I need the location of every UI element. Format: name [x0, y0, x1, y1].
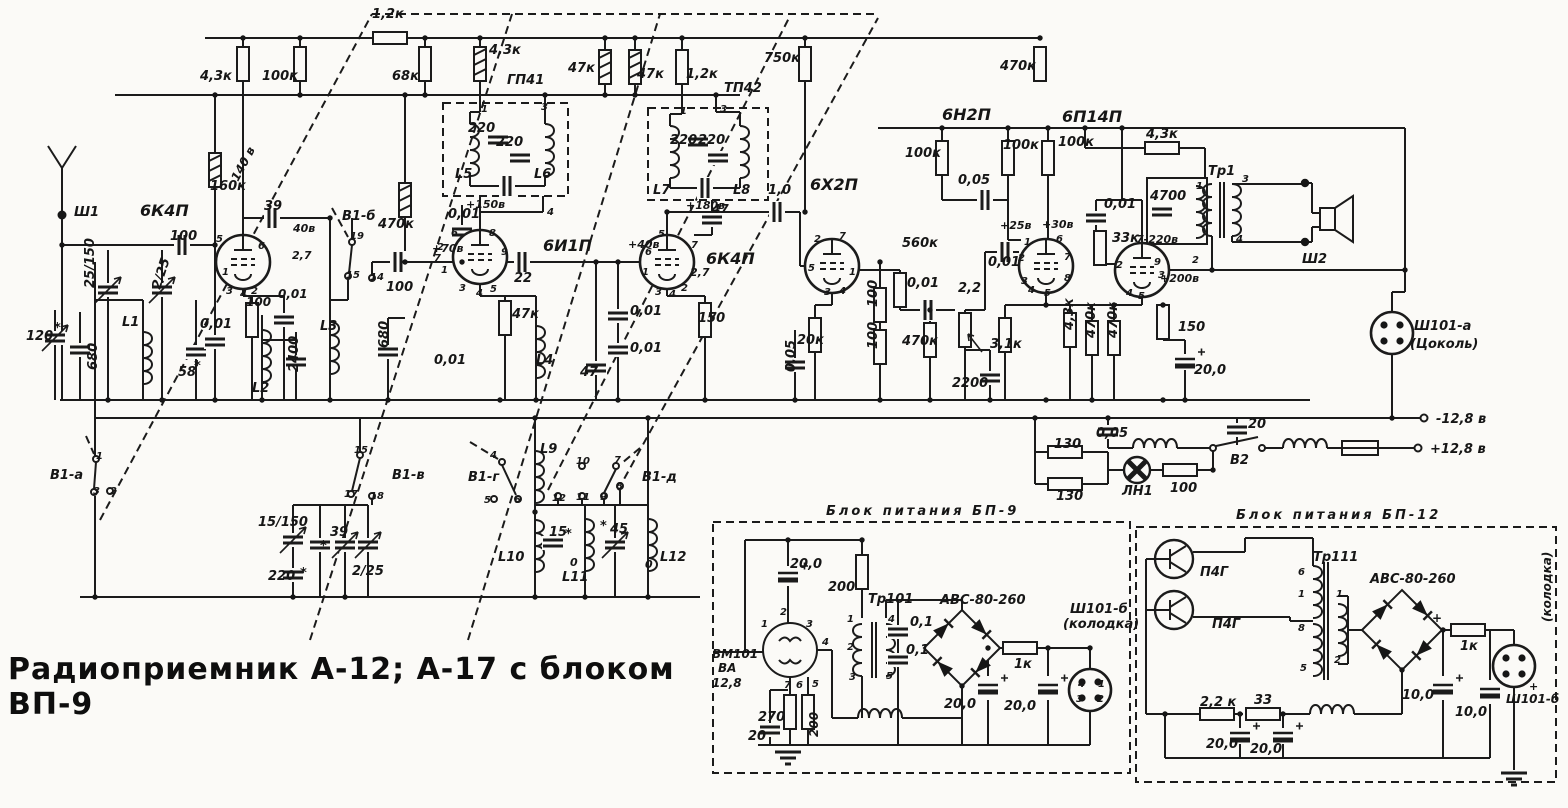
- schematic-label: 2: [814, 234, 821, 245]
- schematic-label: *: [600, 519, 607, 534]
- schematic-label: 6: [451, 228, 458, 239]
- schematic-label: 0,01: [988, 255, 1020, 270]
- schematic-label: 6К4П: [706, 249, 755, 268]
- schematic-label: 5: [886, 671, 893, 682]
- schematic-label: 0,01: [630, 304, 662, 319]
- schematic-label: 4: [239, 289, 247, 300]
- schematic-label: L9: [540, 442, 557, 457]
- schematic-label: 3: [1021, 276, 1028, 287]
- resistor: [799, 47, 811, 81]
- schematic-label: ТП42: [724, 81, 762, 96]
- schematic-label: 4: [1125, 288, 1133, 299]
- schematic-label: 47к: [567, 61, 596, 76]
- schematic-label: 220: [496, 135, 523, 150]
- schematic-label: 4: [1027, 285, 1035, 296]
- schematic-label: 2/25: [352, 564, 384, 579]
- schematic-label: *: [300, 566, 307, 581]
- schematic-label: 4: [887, 614, 895, 625]
- schematic-label: 200: [828, 580, 855, 595]
- schematic-label: 4700: [1149, 189, 1186, 204]
- schematic-label: (Цоколь): [1410, 337, 1478, 352]
- schematic-label: 2: [1097, 694, 1104, 705]
- schematic-label: ВМ101: [712, 647, 758, 661]
- resistor: [1094, 231, 1106, 265]
- speaker-terminal: [1301, 238, 1309, 246]
- schematic-label: В1-в: [392, 468, 425, 483]
- schematic-label: 470к: [999, 59, 1037, 74]
- schematic-label: L4: [536, 353, 553, 368]
- coil-L4: [536, 326, 545, 378]
- schematic-label: 6: [1298, 567, 1305, 578]
- schematic-label: 4: [1077, 679, 1085, 690]
- schematic-label: 4,3к: [1145, 127, 1179, 142]
- schematic-label: 20к: [797, 333, 825, 348]
- schematic-page: Радиоприемник А-12; А-17 с блоком ВП-9: [0, 0, 1568, 808]
- electrolytic-capacitor: [1037, 675, 1068, 697]
- resistor: [1003, 642, 1037, 654]
- schematic-label: +25в: [1000, 219, 1032, 232]
- schematic-label: +40в: [628, 238, 660, 251]
- schematic-label: 6И1П: [543, 236, 593, 255]
- schematic-label: 6П14П: [1062, 107, 1123, 126]
- schematic-label: 3: [93, 486, 100, 497]
- schematic-label: В1-д: [642, 470, 677, 485]
- schematic-label: 11: [576, 492, 590, 503]
- schematic-label: 100: [170, 229, 197, 244]
- schematic-label: 0: [645, 558, 653, 571]
- schematic-label: 4: [838, 286, 846, 297]
- schematic-label: 470к: [1106, 301, 1121, 339]
- schematic-label: 1к: [1460, 639, 1479, 654]
- schematic-label: 7: [434, 253, 441, 264]
- component-layer: [42, 32, 1535, 785]
- schematic-label: ЛН1: [1121, 484, 1153, 499]
- schematic-label: 6К4П: [140, 201, 189, 220]
- schematic-label: 3: [541, 102, 548, 113]
- schematic-label: L7: [653, 183, 671, 198]
- transistor-P4G: [1155, 540, 1193, 578]
- schematic-label: +30в: [1042, 218, 1074, 231]
- schematic-label: 1: [849, 267, 856, 278]
- schematic-label: 6Н2П: [942, 105, 992, 124]
- schematic-label: 1,0: [768, 183, 791, 198]
- schematic-label: *: [54, 321, 61, 336]
- schematic-label: 7: [839, 231, 846, 242]
- schematic-label: 4,3к: [1062, 297, 1077, 331]
- schematic-label: П4Г: [1212, 617, 1241, 632]
- schematic-label: (колодка): [1540, 552, 1554, 622]
- schematic-label: 20: [748, 729, 766, 744]
- resistor: [237, 47, 249, 81]
- resistor: [856, 555, 868, 589]
- schematic-label: 47к: [636, 67, 665, 82]
- resistor: [419, 47, 431, 81]
- tube-6I1P: [453, 230, 507, 284]
- schematic-label: 100к: [905, 146, 942, 161]
- schematic-label: 5: [1300, 663, 1307, 674]
- schematic-label: 2,2 к: [1200, 695, 1238, 710]
- schematic-label: 7-220в: [1136, 233, 1178, 246]
- schematic-label: 20: [1248, 417, 1266, 432]
- capacitor: [273, 313, 295, 327]
- schematic-label: L1: [122, 315, 139, 330]
- electrolytic-capacitor: [1272, 723, 1303, 745]
- schematic-label: L3: [320, 319, 337, 334]
- electrolytic-capacitor: [977, 675, 1008, 697]
- transformer-core: [872, 622, 876, 678]
- schematic-label: 5: [812, 679, 819, 690]
- coil-L9: [535, 451, 544, 503]
- schematic-label: 39: [330, 525, 348, 540]
- schematic-label: 270: [758, 710, 785, 725]
- schematic-label: 20,0: [1194, 363, 1226, 378]
- schematic-label: 3: [655, 287, 662, 298]
- resistor: [474, 47, 486, 81]
- schematic-label: 15/150: [258, 515, 308, 530]
- capacitor: [1226, 423, 1248, 437]
- resistor: [1145, 142, 1179, 154]
- schematic-label: 0,01: [630, 341, 662, 356]
- schematic-label: (колодка): [1063, 617, 1139, 632]
- schematic-label: 6: [258, 241, 265, 252]
- transformer-winding: [1232, 184, 1241, 236]
- schematic-label: П4Г: [1200, 565, 1229, 580]
- coil-L8: [740, 126, 749, 178]
- schematic-label: 7: [784, 680, 791, 691]
- schematic-label: 470к: [1084, 301, 1099, 339]
- schematic-label: 6: [514, 495, 521, 506]
- schematic-label: Ш2: [1302, 252, 1327, 267]
- schematic-label: 220: [268, 569, 295, 584]
- capacitor: [514, 251, 530, 273]
- rectifier-bridge: [1362, 590, 1442, 670]
- capacitor: [1151, 205, 1173, 219]
- schematic-label: 10,0: [1455, 705, 1487, 720]
- schematic-label: L10: [498, 550, 524, 565]
- speaker-terminal: [1301, 179, 1309, 187]
- transformer-core: [1324, 562, 1328, 680]
- resistor: [373, 32, 407, 44]
- schematic-label: Ш1: [74, 205, 99, 220]
- schematic-label: 1: [481, 104, 488, 115]
- schematic-label: 200: [807, 712, 821, 737]
- schematic-label: 1: [96, 451, 103, 462]
- schematic-label: 680: [86, 343, 101, 370]
- schematic-label: 22: [514, 271, 532, 286]
- resistor: [784, 695, 796, 729]
- schematic-label: 3: [824, 287, 831, 298]
- schematic-label: 100к: [262, 69, 299, 84]
- schematic-label: 5: [216, 234, 223, 245]
- dashed-layer: [86, 14, 1556, 782]
- schematic-label: 1: [642, 267, 649, 278]
- schematic-label: 220: [698, 133, 725, 148]
- schematic-label: Ш101-а: [1414, 319, 1471, 334]
- schematic-label: 2: [1334, 655, 1341, 666]
- schematic-label: 4: [489, 450, 497, 461]
- transistor-P4G: [1155, 591, 1193, 629]
- schematic-label: 2: [847, 642, 854, 653]
- schematic-label: 3: [459, 283, 466, 294]
- schematic-label: *: [320, 539, 327, 554]
- schematic-label: Ш101-б: [1070, 602, 1128, 617]
- schematic-label: 1: [222, 267, 229, 278]
- schematic-label: *: [565, 527, 572, 542]
- schematic-label: ВА: [718, 661, 736, 675]
- schematic-label: 750к: [764, 51, 801, 66]
- schematic-label: 6Х2П: [810, 175, 859, 194]
- schematic-label: 3: [720, 104, 727, 115]
- schematic-label: 4: [821, 637, 829, 648]
- schematic-label: 19: [350, 231, 364, 242]
- schematic-label: -12,8 в: [1436, 412, 1486, 427]
- schematic-label: 12,8: [712, 676, 742, 690]
- schematic-label: Тр1: [1208, 164, 1235, 179]
- schematic-label: 3: [849, 672, 856, 683]
- schematic-label: 14: [370, 272, 384, 283]
- resistor: [399, 183, 411, 217]
- schematic-label: 8: [1064, 273, 1071, 284]
- schematic-label: 470к: [901, 334, 939, 349]
- schematic-label: 47: [711, 202, 729, 216]
- schematic-label: 68к: [392, 69, 420, 84]
- schematic-label: 7: [691, 240, 698, 251]
- schematic-label: +200в: [1160, 272, 1199, 285]
- schematic-label: 3: [1076, 694, 1083, 705]
- schematic-label: L8: [733, 183, 750, 198]
- schematic-label: 8: [616, 481, 623, 492]
- resistor: [894, 273, 906, 307]
- schematic-label: L11: [562, 570, 588, 585]
- schematic-label: 2,7: [292, 249, 312, 262]
- choke: [1283, 439, 1327, 448]
- schematic-label: 100: [386, 280, 413, 295]
- schematic-label: Блок питания БП-12: [1236, 508, 1441, 523]
- speaker-body: [1320, 208, 1335, 230]
- coil-L2: [262, 330, 271, 382]
- schematic-label: 3,1к: [990, 337, 1023, 352]
- schematic-label: 20,0: [1206, 737, 1238, 752]
- power-block-bp12: [1136, 527, 1556, 782]
- capacitor: [977, 189, 993, 211]
- schematic-label: 15: [346, 270, 360, 281]
- capacitor: [499, 175, 515, 197]
- resistor: [1246, 708, 1280, 720]
- schematic-label: 120: [26, 329, 53, 344]
- schematic-label: 4: [1235, 234, 1243, 245]
- junction-dots: [59, 35, 1445, 716]
- schematic-label: 1: [761, 619, 768, 630]
- schematic-label: 1: [441, 265, 448, 276]
- capacitor: [204, 335, 226, 349]
- schematic-label: 220: [468, 121, 495, 136]
- schematic-label: В2: [1230, 453, 1249, 468]
- schematic-label: 4,3к: [199, 69, 233, 84]
- capacitor: [707, 151, 729, 165]
- choke: [858, 709, 902, 718]
- capacitor: [697, 177, 713, 199]
- choke: [1310, 705, 1354, 714]
- schematic-label: 33: [1254, 693, 1272, 708]
- resistor: [1042, 141, 1054, 175]
- schematic-label: 100: [246, 295, 271, 309]
- schematic-label: 5: [658, 229, 665, 240]
- schematic-label: 4: [475, 288, 483, 299]
- schematic-label: +12,8 в: [1430, 442, 1486, 457]
- schematic-label: +: [1529, 680, 1538, 693]
- capacitor: [887, 625, 909, 639]
- schematic-label: 9: [600, 492, 607, 503]
- schematic-label: 4: [668, 289, 676, 300]
- schematic-label: 3: [226, 286, 233, 297]
- schematic-label: 0,05: [1096, 426, 1128, 441]
- schematic-label: 2: [1116, 260, 1123, 271]
- electrolytic-capacitor: [1432, 675, 1463, 697]
- schematic-label: 6: [645, 247, 652, 258]
- schematic-label: 5: [484, 495, 491, 506]
- schematic-label: 10: [576, 456, 590, 467]
- transformer-core: [1220, 182, 1224, 238]
- schematic-label: 1: [1336, 589, 1343, 600]
- schematic-label: В1-а: [50, 468, 83, 483]
- schematic-label: 2200: [952, 376, 988, 391]
- schematic-label: 3: [806, 619, 813, 630]
- schematic-label: Ш101-б: [1506, 692, 1559, 706]
- schematic-label: 1: [680, 106, 687, 117]
- coil-L1: [143, 332, 152, 384]
- schematic-label: 2400: [287, 336, 302, 372]
- schematic-label: 7: [614, 455, 621, 466]
- ground-symbol: [775, 752, 801, 764]
- schematic-label: 130: [1054, 437, 1081, 452]
- schematic-label: 2: [110, 486, 117, 497]
- schematic-label: 5: [1138, 291, 1145, 302]
- schematic-label: 6: [1056, 234, 1063, 245]
- schematic-label: L12: [660, 550, 686, 565]
- schematic-label: Тр101: [868, 592, 913, 607]
- capacitor: [607, 343, 629, 357]
- capacitor: [769, 201, 785, 223]
- schematic-label: АВС-80-260: [1369, 572, 1456, 587]
- schematic-label: 15: [354, 445, 368, 456]
- schematic-label: ГП41: [507, 73, 544, 88]
- schematic-label: 12: [552, 493, 566, 504]
- schematic-label: 2: [437, 242, 444, 253]
- volume-potentiometer: [959, 313, 971, 347]
- schematic-label: 0,01: [278, 287, 308, 301]
- schematic-label: 10,0: [1402, 688, 1434, 703]
- schematic-label: 130: [1056, 489, 1083, 504]
- schematic-label: 4: [546, 207, 554, 218]
- schematic-label: 47: [579, 365, 599, 380]
- resistor: [1163, 464, 1197, 476]
- schematic-label: 220: [670, 133, 697, 148]
- choke: [1133, 439, 1177, 448]
- schematic-label: 20,0: [944, 697, 976, 712]
- schematic-label: В1-б: [342, 209, 375, 224]
- schematic-label: 2: [1018, 253, 1025, 264]
- antenna-terminal: [58, 211, 67, 220]
- schematic-label: 9: [1154, 257, 1161, 268]
- dial-lamp-LN1: [1124, 457, 1150, 483]
- schematic-label: 1к: [1014, 657, 1033, 672]
- schematic-label: 3: [1158, 270, 1165, 281]
- schematic-label: 1: [1098, 679, 1105, 690]
- schematic-label: 5: [490, 284, 497, 295]
- schematic-label: L5: [455, 167, 472, 182]
- schematic-label: 150: [698, 311, 725, 326]
- schematic-label: 0,1: [906, 643, 929, 658]
- schematic-label: 1: [1298, 589, 1305, 600]
- schematic-label: *: [194, 359, 201, 374]
- schematic-label: 3: [1242, 174, 1249, 185]
- schematic-label: 5: [1044, 288, 1051, 299]
- ground-symbol: [1501, 773, 1527, 785]
- schematic-label: 47к: [511, 307, 540, 322]
- schematic-label: 18: [370, 491, 384, 502]
- schematic-label: 1: [1196, 181, 1203, 192]
- schematic-label: 2: [681, 283, 688, 294]
- schematic-label: 17: [344, 489, 358, 500]
- capacitor: [607, 309, 629, 323]
- schematic-label: 100: [1170, 481, 1197, 496]
- schematic-label: +150в: [466, 198, 505, 211]
- schematic-label: 20,0: [1004, 699, 1036, 714]
- capacitor: [509, 151, 531, 165]
- schematic-label: 9: [501, 247, 508, 258]
- connector-sh101a: [1371, 312, 1413, 354]
- schematic-label: 1,2к: [372, 7, 405, 22]
- schematic-label: 100к: [1003, 138, 1040, 153]
- schematic-label: 40в: [292, 222, 315, 235]
- schematic-label: 8: [489, 228, 496, 239]
- schematic-label: В1-г: [468, 470, 500, 485]
- fuse: [1342, 441, 1378, 455]
- schematic-label: 8: [1298, 623, 1305, 634]
- capacitor: [185, 345, 207, 359]
- capacitor: [1085, 211, 1107, 225]
- schematic-label: 39: [264, 199, 282, 214]
- resistor: [599, 50, 611, 84]
- schematic-label: 45: [609, 522, 628, 537]
- schematic-canvas: 1,2к4,3к100к68к4,3кГП4147к47к1,2кТП42750…: [0, 0, 1568, 808]
- schematic-label: 1: [1024, 237, 1031, 248]
- schematic-label: 25/150: [83, 238, 98, 288]
- speaker-horn: [1335, 196, 1353, 242]
- schematic-label: L6: [534, 167, 551, 182]
- schematic-label: 0: [570, 556, 578, 569]
- schematic-label: 1: [847, 614, 854, 625]
- schematic-label: 0,01: [907, 276, 939, 291]
- schematic-label: 680: [377, 321, 392, 348]
- schematic-label: АВС-80-260: [939, 593, 1026, 608]
- schematic-label: 0,01: [200, 317, 232, 332]
- schematic-label: 2,2: [958, 281, 981, 296]
- schematic-label: 0,01: [434, 353, 466, 368]
- schematic-label: Блок питания БП-9: [826, 504, 1019, 519]
- schematic-label: +: [1432, 611, 1442, 625]
- schematic-label: 5: [808, 263, 815, 274]
- resistor: [499, 301, 511, 335]
- schematic-label: 4,3к: [488, 43, 522, 58]
- resistor: [1157, 305, 1169, 339]
- schematic-label: 20,0: [1250, 742, 1282, 757]
- transformer-winding: [1313, 566, 1322, 618]
- schematic-label: 100к: [1058, 135, 1095, 150]
- schematic-label: 1,2к: [686, 67, 719, 82]
- schematic-label: 20,0: [790, 557, 822, 572]
- vibrator-VM101: [763, 623, 817, 677]
